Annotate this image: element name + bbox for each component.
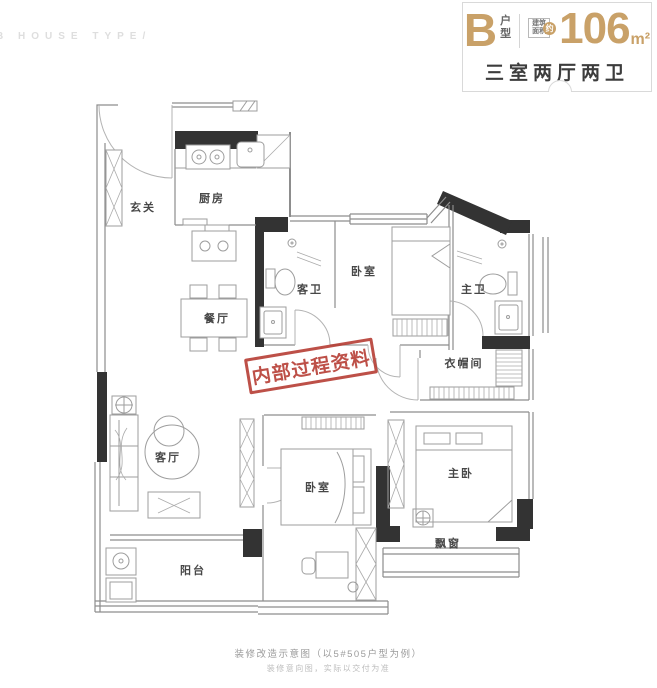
furniture-bedroom-south <box>281 449 376 600</box>
floorplan-page: B HOUSE TYPE/ B 户 型 建筑 面积 约 106 m² 三室两厅两… <box>0 0 657 688</box>
furniture-kitchen <box>175 135 290 261</box>
label-kitchen: 厨房 <box>199 191 225 205</box>
label-cloakroom: 衣帽间 <box>445 356 484 370</box>
label-bedroom-south: 卧室 <box>305 480 331 494</box>
label-dining: 餐厅 <box>203 311 230 325</box>
furniture-bedroom-north <box>392 227 450 336</box>
label-balcony: 阳台 <box>180 563 206 577</box>
furniture-entry <box>106 150 122 226</box>
footer-caption-disclaimer: 装修意向图，实际以交付为准 <box>0 663 657 674</box>
footer-captions: 装修改造示意图（以5#505户型为例） 装修意向图，实际以交付为准 <box>0 646 657 674</box>
label-bay-window: 飘窗 <box>435 536 461 550</box>
label-master-bath: 主卫 <box>461 282 487 296</box>
label-guest-bath: 客卫 <box>296 282 323 296</box>
label-living: 客厅 <box>154 450 181 464</box>
furniture-balcony <box>106 548 136 602</box>
furniture-living <box>110 396 254 518</box>
label-entry: 玄关 <box>130 200 156 214</box>
label-bedroom-north: 卧室 <box>351 264 377 278</box>
footer-caption-main: 装修改造示意图（以5#505户型为例） <box>0 646 657 660</box>
label-master-bedroom: 主卧 <box>448 466 474 480</box>
